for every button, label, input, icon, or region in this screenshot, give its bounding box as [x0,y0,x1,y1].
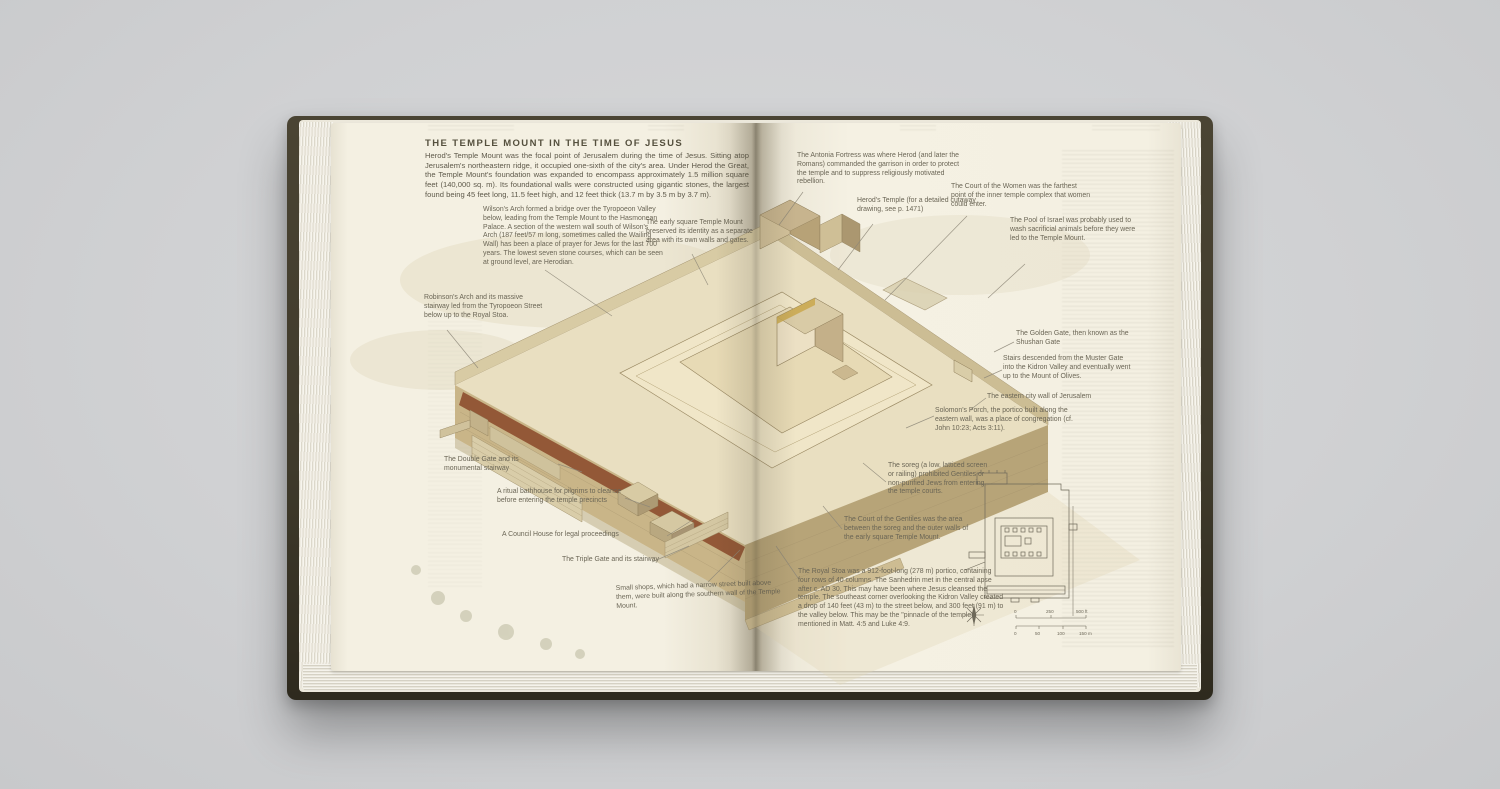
page-title: THE TEMPLE MOUNT IN THE TIME OF JESUS [425,138,755,149]
scale-m-100: 100 [1057,631,1065,636]
label-eastern-city-wall: The eastern city wall of Jerusalem [987,393,1139,402]
scale-ft-250: 250 [1046,609,1054,614]
scale-bar [1016,615,1086,629]
scale-m-0: 0 [1014,631,1017,636]
plan-temple [1005,536,1021,546]
label-court-of-gentiles: The Court of the Gentiles was the area b… [844,516,976,542]
label-wilsons-arch: Wilson's Arch formed a bridge over the T… [483,206,663,268]
plan-wilsons-arch [969,552,985,558]
label-pool-of-israel: The Pool of Israel was probably used to … [1010,217,1136,243]
label-royal-stoa: The Royal Stoa was a 912-foot-long (278 … [798,568,1004,630]
label-council-house: A Council House for legal proceedings [502,531,674,540]
label-golden-gate: The Golden Gate, then known as the Shush… [1016,330,1134,348]
intro-paragraph: Herod's Temple Mount was the focal point… [425,151,749,199]
label-triple-gate: The Triple Gate and its stairway [562,556,712,565]
label-muster-gate-stairs: Stairs descended from the Muster Gate in… [1003,355,1131,381]
label-ritual-bathhouse: A ritual bathhouse for pilgrims to clean… [497,488,627,506]
label-robinsons-arch: Robinson's Arch and its massive stairway… [424,294,546,320]
label-court-of-women: The Court of the Women was the farthest … [951,183,1093,209]
label-solomons-porch: Solomon's Porch, the portico built along… [935,407,1075,433]
photo-background: 0 250 500 ft 0 50 100 150 m THE TEMPLE M… [0,0,1500,789]
plan-altar [1025,538,1031,544]
label-soreg: The soreg (a low, latticed screen or rai… [888,462,994,497]
plan-inner-court [1001,526,1047,558]
label-early-square: The early square Temple Mount preserved … [646,219,758,245]
vegetation [411,565,585,659]
scale-m-150: 150 m [1079,631,1092,636]
label-double-gate: The Double Gate and its monumental stair… [444,456,556,474]
scale-ft-500: 500 ft [1076,609,1088,614]
scale-m-50: 50 [1035,631,1041,636]
scale-ft-0: 0 [1014,609,1017,614]
label-antonia-fortress: The Antonia Fortress was where Herod (an… [797,152,962,187]
